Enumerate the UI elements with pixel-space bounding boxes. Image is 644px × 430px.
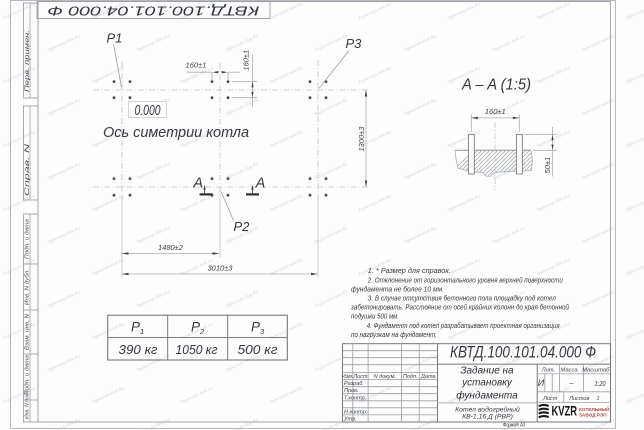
svg-text:КВТД.100.101.04.000 Ф: КВТД.100.101.04.000 Ф (450, 344, 596, 362)
svg-text:Разраб.: Разраб. (344, 381, 364, 387)
svg-text:A – A (1:5): A – A (1:5) (461, 77, 531, 94)
svg-text:Ось симетрии котла: Ось симетрии котла (103, 125, 249, 141)
svg-text:Лист: Лист (542, 396, 558, 402)
svg-text:50±1: 50±1 (543, 157, 552, 174)
svg-text:1300±3: 1300±3 (357, 126, 366, 152)
svg-text:A: A (255, 175, 266, 191)
svg-text:Масса: Масса (560, 367, 578, 373)
svg-text:Подп. и дата: Подп. и дата (25, 355, 31, 395)
svg-text:0.000: 0.000 (135, 103, 161, 119)
svg-text:Формат А3: Формат А3 (503, 423, 526, 429)
svg-text:подушки 500 мм.: подушки 500 мм. (351, 312, 399, 321)
svg-text:P2: P2 (234, 219, 251, 234)
svg-text:P1: P1 (107, 31, 123, 46)
svg-text:фундамента не более 10 мм.: фундамента не более 10 мм. (351, 284, 444, 293)
svg-text:фундамента: фундамента (456, 389, 518, 401)
svg-text:Н.контр.: Н.контр. (344, 409, 367, 415)
svg-text:Подп.: Подп. (403, 374, 418, 380)
svg-text:3. В случае отсутствия бетонно: 3. В случае отсутствия бетонного пола пл… (368, 294, 557, 303)
svg-text:Инв. N подл.: Инв. N подл. (25, 389, 31, 419)
svg-text:Т.контр.: Т.контр. (344, 395, 366, 401)
svg-text:Подп. и дата: Подп. и дата (25, 219, 31, 259)
svg-text:Лист: Лист (352, 374, 368, 380)
svg-text:Справ. N: Справ. N (25, 143, 31, 196)
svg-text:4. Фундамент под котел разраба: 4. Фундамент под котел разрабатывает про… (367, 321, 560, 330)
svg-text:Масштаб: Масштаб (582, 367, 610, 373)
svg-text:P3: P3 (346, 36, 363, 51)
svg-text:390 кг: 390 кг (119, 342, 159, 357)
svg-text:160±1: 160±1 (485, 107, 506, 116)
svg-text:Лит.: Лит. (541, 367, 556, 373)
svg-text:A: A (192, 175, 203, 191)
svg-text:160±1: 160±1 (186, 61, 207, 70)
svg-text:по нагрузкам на фундамент.: по нагрузкам на фундамент. (351, 330, 437, 339)
svg-text:установку: установку (461, 378, 513, 389)
svg-text:KVZR: KVZR (552, 403, 578, 418)
svg-text:3010±3: 3010±3 (208, 263, 234, 272)
svg-text:N докум.: N докум. (374, 374, 396, 380)
svg-text:–: – (568, 378, 574, 387)
svg-text:Листов: Листов (568, 396, 589, 402)
svg-text:Утв.: Утв. (343, 417, 357, 423)
svg-text:Инв. N дубл.: Инв. N дубл. (25, 269, 31, 305)
svg-text:1480±2: 1480±2 (158, 243, 184, 252)
svg-text:160±1: 160±1 (241, 50, 250, 71)
svg-text:КОТЕЛЬНЫЙ: КОТЕЛЬНЫЙ (579, 405, 610, 412)
svg-text:Дата: Дата (420, 374, 436, 380)
svg-text:Задание на: Задание на (460, 365, 514, 376)
svg-text:Взам. инв. N: Взам. инв. N (25, 314, 31, 350)
svg-text:1:20: 1:20 (595, 379, 607, 388)
svg-text:1050 кг: 1050 кг (176, 342, 219, 357)
svg-text:ЗАВОД РЭП: ЗАВОД РЭП (579, 413, 607, 418)
svg-text:Изм.: Изм. (342, 374, 354, 380)
svg-text:Котел водогрейный: Котел водогрейный (455, 405, 520, 413)
svg-text:КВТД.100.101.04.000 Ф: КВТД.100.101.04.000 Ф (47, 4, 259, 18)
svg-text:И: И (538, 378, 545, 388)
svg-text:1. * Размер для справок.: 1. * Размер для справок. (368, 266, 451, 275)
svg-text:1: 1 (596, 396, 599, 402)
svg-text:КВ-1,16 Д (РВР): КВ-1,16 Д (РВР) (462, 414, 513, 421)
svg-text:500 кг: 500 кг (238, 342, 279, 357)
svg-text:2. Отклонение от горизонтально: 2. Отклонение от горизонтального уровня … (367, 275, 563, 284)
svg-text:Перв. примен.: Перв. примен. (25, 30, 31, 92)
svg-text:Пров.: Пров. (344, 388, 359, 394)
svg-text:забетонировать. Расстояние от: забетонировать. Расстояние от осей крайн… (350, 303, 569, 312)
